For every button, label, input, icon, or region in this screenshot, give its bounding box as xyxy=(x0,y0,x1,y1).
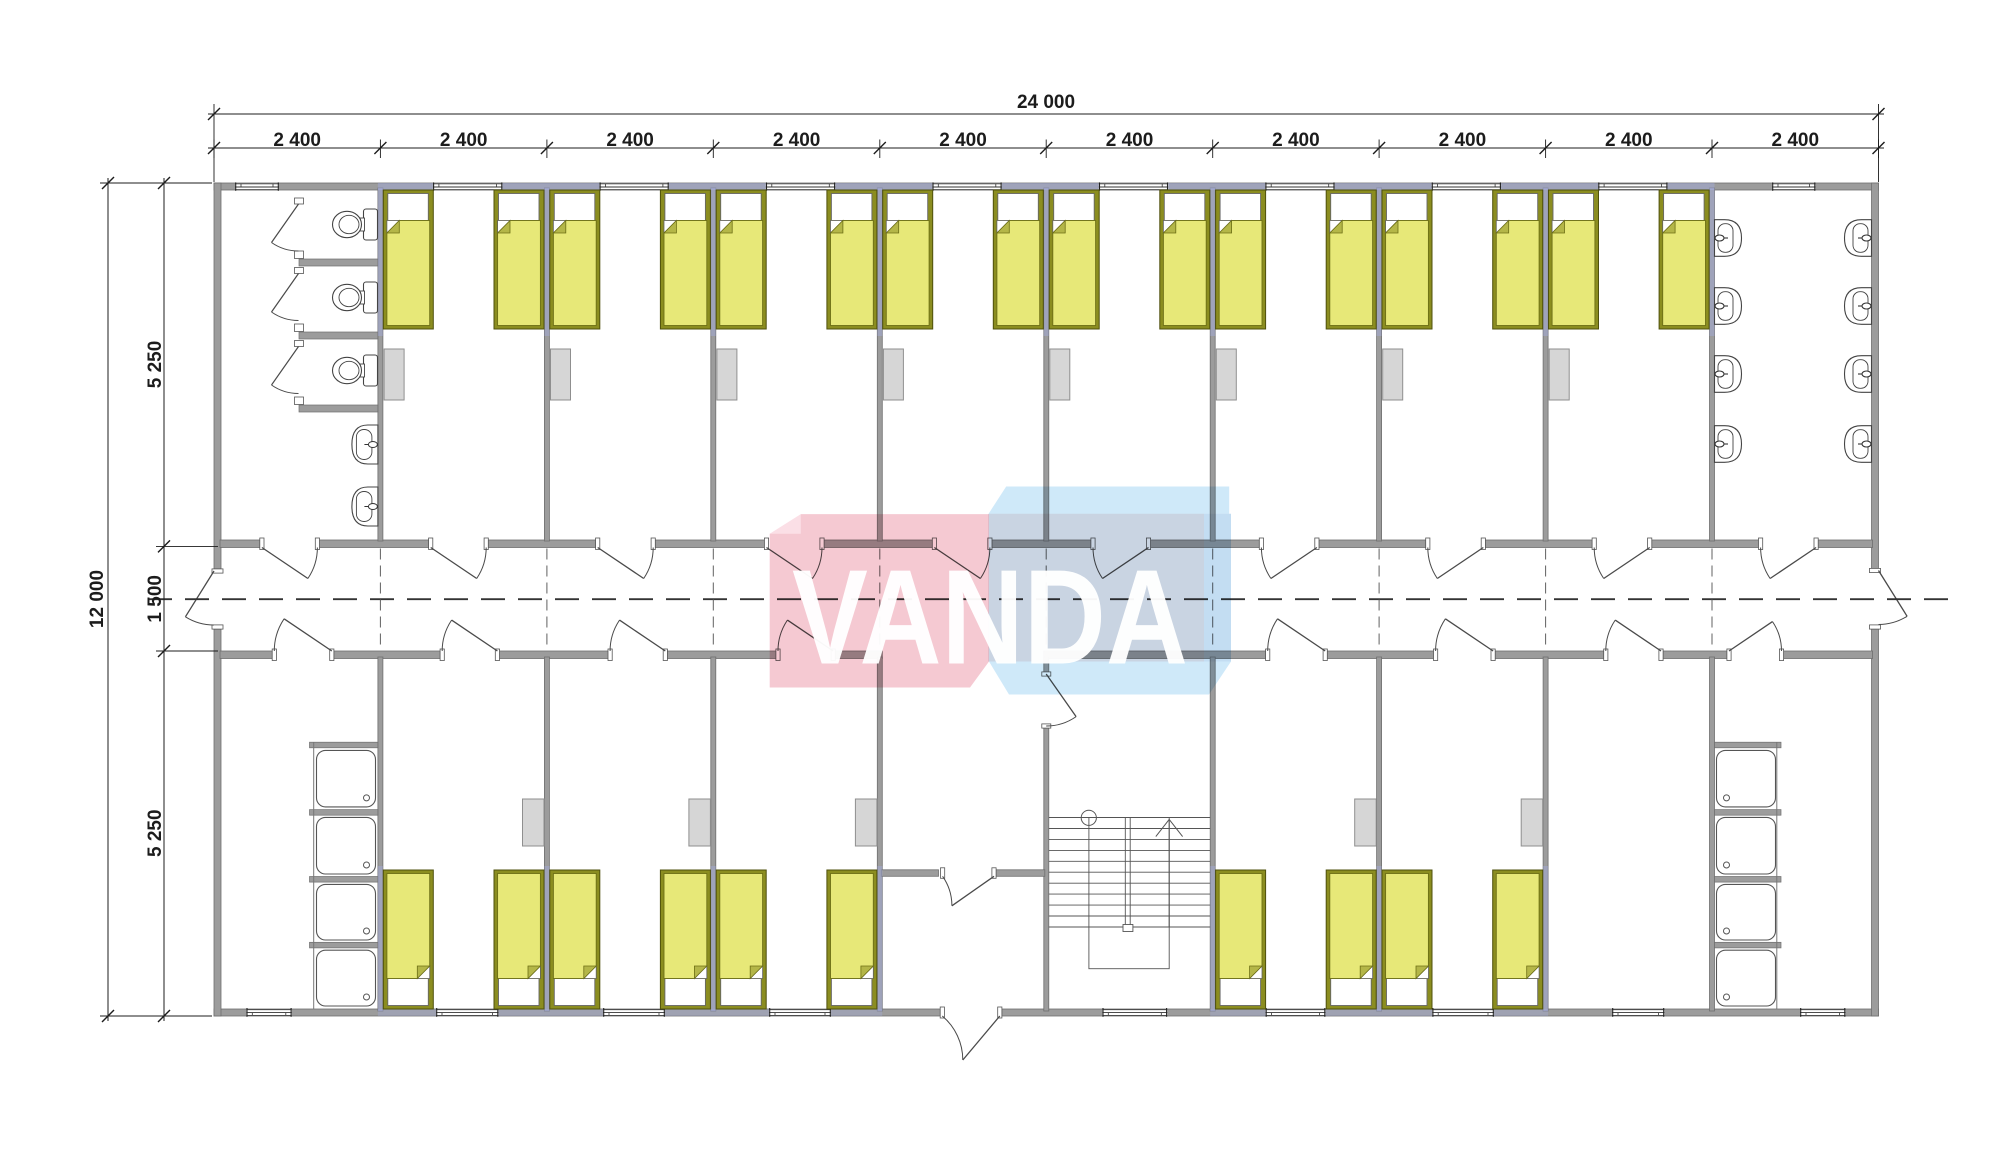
svg-text:VANDA: VANDA xyxy=(792,542,1188,693)
svg-text:2 400: 2 400 xyxy=(606,130,654,151)
svg-text:2 400: 2 400 xyxy=(1772,130,1820,151)
svg-text:2 400: 2 400 xyxy=(1439,130,1487,151)
svg-text:2 400: 2 400 xyxy=(1605,130,1653,151)
svg-text:2 400: 2 400 xyxy=(773,130,821,151)
svg-text:1 500: 1 500 xyxy=(145,575,166,623)
svg-text:2 400: 2 400 xyxy=(1272,130,1320,151)
svg-text:2 400: 2 400 xyxy=(1106,130,1154,151)
svg-text:24 000: 24 000 xyxy=(1017,92,1075,113)
svg-text:5 250: 5 250 xyxy=(145,341,166,389)
svg-text:2 400: 2 400 xyxy=(273,130,321,151)
svg-text:2 400: 2 400 xyxy=(939,130,987,151)
svg-text:12 000: 12 000 xyxy=(87,570,108,628)
svg-text:2 400: 2 400 xyxy=(440,130,488,151)
svg-text:5 250: 5 250 xyxy=(145,809,166,857)
